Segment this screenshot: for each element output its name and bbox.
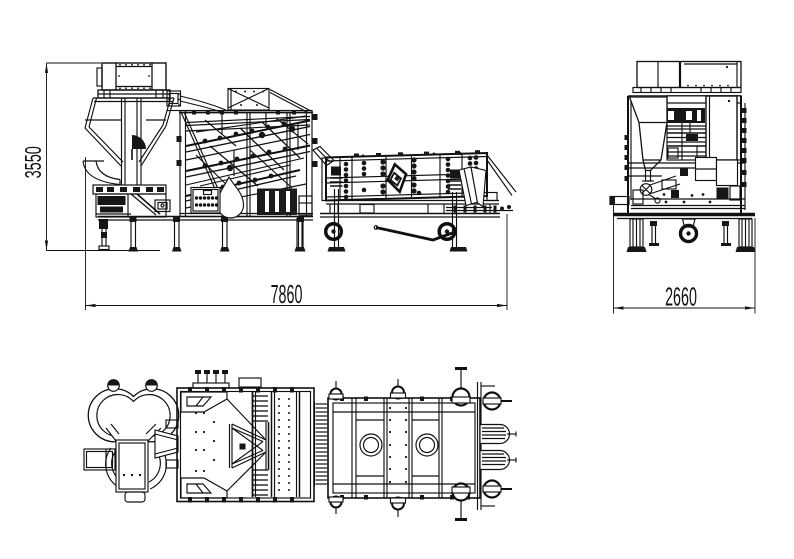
svg-text:2660: 2660 (665, 283, 697, 312)
svg-text:7860: 7860 (271, 281, 303, 310)
svg-text:3550: 3550 (22, 146, 47, 178)
